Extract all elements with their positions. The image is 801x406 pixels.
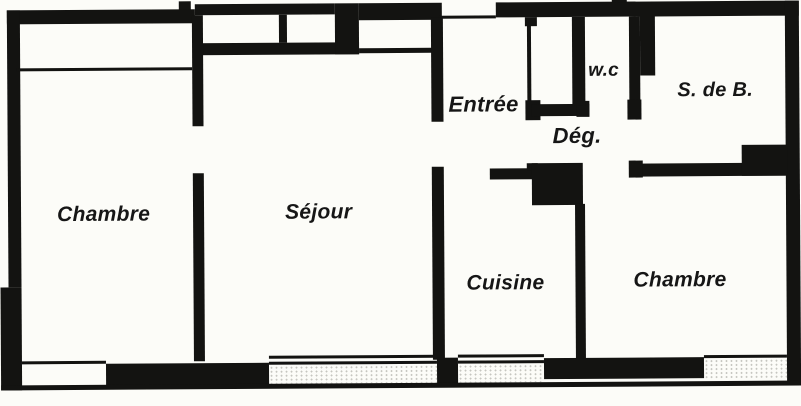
- wall-right: [785, 1, 801, 383]
- room-label-entry: Entrée: [448, 91, 518, 117]
- room-label-bedroom2: Chambre: [633, 268, 726, 293]
- window-bottom-living: [269, 365, 437, 384]
- wall-left-lower: [1, 287, 23, 390]
- wall-line-bottom-living-a: [269, 355, 437, 359]
- wall-block-top-living-right: [335, 3, 359, 54]
- window-top-living-1: [203, 15, 279, 43]
- entry-door-line: [439, 15, 496, 18]
- room-label-bedroom1: Chambre: [57, 203, 150, 228]
- wall-line-bottom-kitchen-a: [458, 354, 544, 358]
- wall-line-bottom-kitchen-b: [458, 360, 544, 364]
- wall-living-entry: [431, 18, 444, 122]
- closet-tab-top: [525, 17, 537, 26]
- room-label-kitchen: Cuisine: [466, 271, 544, 295]
- chimney-block: [532, 163, 583, 205]
- wall-kitchen-bedroom2: [575, 204, 586, 359]
- wall-bathroom-step: [742, 145, 788, 176]
- closet-line-bedroom1: [16, 67, 192, 71]
- wall-block-bottom-2: [437, 358, 458, 384]
- room-label-bathroom: S. de B.: [677, 79, 753, 102]
- room-label-hallway: Dég.: [553, 123, 602, 149]
- wall-wc-right-wide: [640, 16, 655, 75]
- window-bottom-kitchen: [458, 364, 544, 383]
- floor-plan-drawing: Chambre Séjour Entrée w.c S. de B. Dég. …: [0, 0, 801, 406]
- wall-left-upper: [7, 10, 22, 287]
- floor-plan: Chambre Séjour Entrée w.c S. de B. Dég. …: [0, 0, 801, 406]
- wall-top-bedroom1: [7, 9, 195, 24]
- closet-line-entry: [527, 23, 531, 102]
- wall-bedroom1-living-lower: [193, 173, 205, 361]
- wall-stub-top-right: [612, 0, 627, 3]
- window-mullion-top: [279, 15, 287, 43]
- window-bottom-bedroom1: [22, 365, 106, 386]
- wall-bathroom-bottom-bump: [629, 161, 643, 178]
- wall-block-bottom-1: [106, 363, 269, 386]
- wall-top-right: [496, 1, 799, 18]
- wall-top-recess: [359, 3, 442, 21]
- wall-wc-left: [572, 17, 586, 106]
- wall-bedroom1-living-upper: [192, 15, 204, 126]
- wall-line-bottom-bedroom1: [22, 361, 106, 365]
- room-label-wc: w.c: [588, 60, 619, 82]
- wall-living-kitchen: [432, 167, 445, 360]
- window-top-living-2: [287, 14, 335, 38]
- wall-line-bottom-bedroom2: [704, 355, 787, 359]
- room-label-living: Séjour: [285, 200, 352, 224]
- wall-block-bottom-3: [544, 357, 704, 379]
- wall-wc-right-tab: [627, 100, 641, 120]
- window-top-recess: [359, 20, 432, 48]
- wall-sill-recess: [359, 48, 432, 53]
- window-bottom-bedroom2: [704, 359, 787, 380]
- wall-wc-right: [629, 17, 641, 102]
- wall-top-living-outer: [195, 3, 335, 15]
